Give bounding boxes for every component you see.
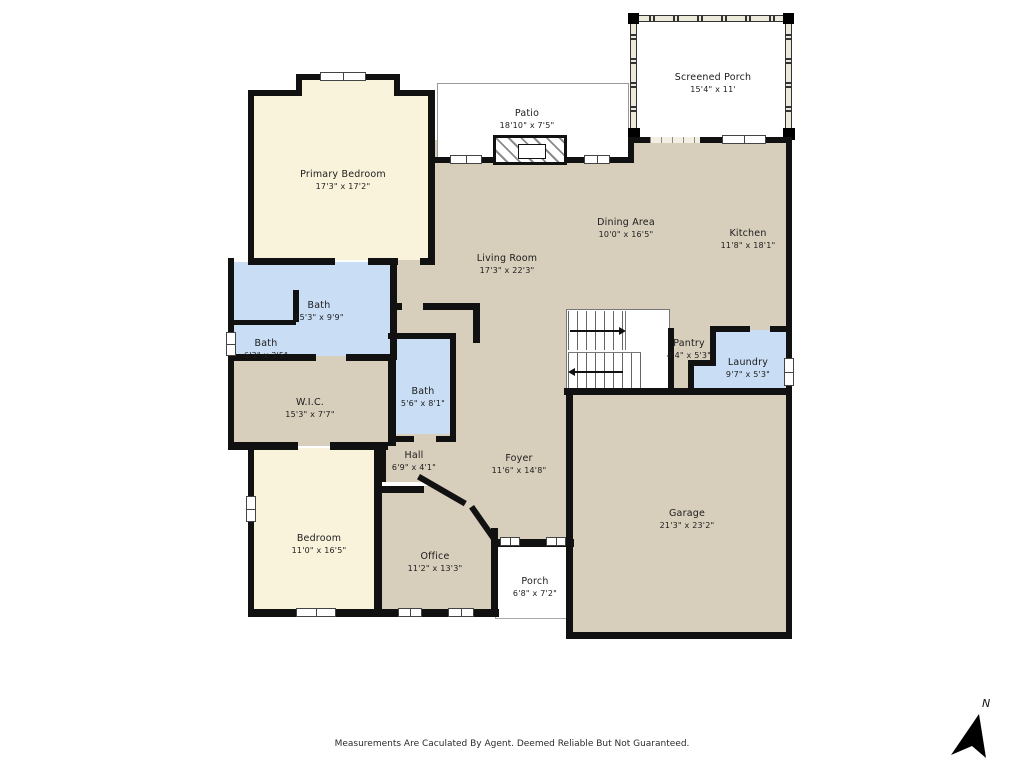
window <box>246 496 256 522</box>
screen-door <box>650 137 700 143</box>
room-label-half-bath: Bath 6'3" x 3'5" <box>244 338 288 362</box>
room-label-porch: Porch 6'8" x 7'2" <box>513 576 557 600</box>
stair-direction-line <box>575 371 623 373</box>
wall <box>566 388 573 638</box>
room-label-hall: Hall 6'9" x 4'1" <box>392 450 436 474</box>
wall <box>388 333 456 339</box>
compass-north: N <box>948 693 1008 765</box>
wall <box>374 609 499 617</box>
room-label-dining-area: Dining Area 10'0" x 16'5" <box>597 217 655 241</box>
wall <box>628 137 650 143</box>
stair-direction-arrow <box>568 368 575 376</box>
window <box>450 155 482 164</box>
wall <box>248 450 254 616</box>
room-label-primary-bedroom: Primary Bedroom 17'3" x 17'2" <box>300 169 386 193</box>
window <box>500 537 520 546</box>
wall <box>374 486 424 493</box>
wall <box>428 157 450 163</box>
wall <box>228 354 234 448</box>
floor-plan: Primary Bedroom 17'3" x 17'2" Patio 18'1… <box>0 0 1024 768</box>
window <box>546 537 566 546</box>
wall <box>450 333 456 442</box>
window <box>226 332 236 356</box>
wall <box>230 320 296 325</box>
wall <box>710 326 750 332</box>
wall <box>374 448 382 616</box>
wall <box>388 354 396 446</box>
wall <box>390 303 402 310</box>
staircase <box>566 309 670 393</box>
stair-direction-arrow <box>619 327 626 335</box>
wall <box>473 303 480 343</box>
room-label-pantry: Pantry 4'4" x 5'3" <box>667 338 711 362</box>
screen-wall <box>785 15 792 141</box>
wall <box>436 436 454 442</box>
window <box>320 72 366 81</box>
wall <box>423 303 480 310</box>
window <box>448 608 474 617</box>
wall <box>428 90 435 264</box>
window <box>584 155 610 164</box>
wall <box>228 442 298 450</box>
fireplace-firebox <box>518 144 546 159</box>
room-label-hall-bath: Bath 5'6" x 8'1" <box>401 386 445 410</box>
room-label-laundry: Laundry 9'7" x 5'3" <box>726 357 770 381</box>
wall <box>567 157 584 163</box>
room-label-foyer: Foyer 11'6" x 14'8" <box>492 453 547 477</box>
screen-wall <box>630 15 792 22</box>
room-label-kitchen: Kitchen 11'8" x 18'1" <box>721 228 776 252</box>
room-label-living-room: Living Room 17'3" x 22'3" <box>477 253 538 277</box>
room-label-primary-bath: Bath 15'3" x 9'9" <box>294 300 343 324</box>
room-label-patio: Patio 18'10" x 7'5" <box>500 108 555 132</box>
wall <box>688 360 694 392</box>
porch-post <box>783 13 794 24</box>
window <box>722 135 766 144</box>
window <box>784 358 794 386</box>
room-label-bedroom: Bedroom 11'0" x 16'5" <box>292 533 347 557</box>
north-arrow-icon <box>948 693 1008 765</box>
room-label-wic: W.I.C. 15'3" x 7'7" <box>285 397 334 421</box>
wall <box>566 632 792 639</box>
laundry-floor-ext <box>692 362 720 390</box>
screen-wall <box>630 15 637 141</box>
wall <box>564 388 792 395</box>
fireplace-chimney <box>493 135 567 165</box>
room-label-office: Office 11'2" x 13'3" <box>408 551 463 575</box>
stair-direction-line <box>570 330 619 332</box>
bedroom-floor <box>252 448 376 613</box>
wall <box>700 137 722 143</box>
window <box>296 608 336 617</box>
room-label-garage: Garage 21'3" x 23'2" <box>660 508 715 532</box>
wall <box>482 157 494 163</box>
porch-post <box>628 13 639 24</box>
wall <box>248 90 302 96</box>
wall <box>420 258 435 265</box>
wall <box>248 90 254 264</box>
wall <box>770 326 788 332</box>
wall <box>248 258 335 265</box>
window <box>398 608 422 617</box>
wall <box>388 436 414 442</box>
disclaimer-text: Measurements Are Caculated By Agent. Dee… <box>0 739 1024 749</box>
room-label-screened-porch: Screened Porch 15'4" x 11' <box>675 72 752 96</box>
